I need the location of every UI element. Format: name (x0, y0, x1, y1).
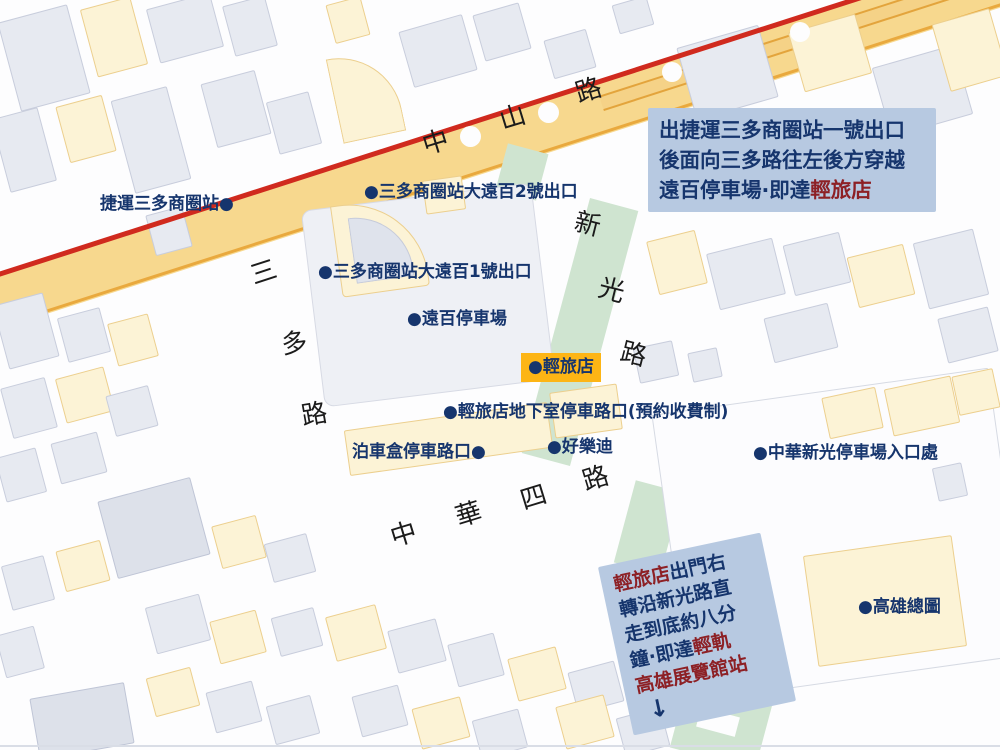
building (687, 347, 723, 383)
building (222, 0, 278, 57)
marker-hotel-basement-parking: ●輕旅店地下室停車路口(預約收費制) (443, 397, 728, 422)
hotel-name-highlight: 輕旅店 (810, 178, 872, 202)
building (783, 232, 852, 296)
building (706, 238, 786, 311)
building (472, 2, 531, 61)
building (937, 306, 999, 363)
building (447, 633, 505, 688)
building (145, 594, 212, 655)
road-notch (790, 22, 810, 42)
building (847, 244, 916, 308)
building (913, 229, 990, 310)
building (200, 70, 271, 148)
note-line: 遠百停車場·即達輕旅店 (659, 175, 925, 205)
street-name-char: 三 (245, 249, 281, 292)
marker-parking-box: 泊車盒停車路口● (352, 437, 486, 462)
road-notch (460, 126, 481, 147)
building (111, 86, 192, 194)
building (55, 540, 110, 592)
building (646, 230, 708, 295)
marker-zhonghua-xinguang-parking: ●中華新光停車場入口處 (753, 438, 938, 463)
building (325, 604, 387, 662)
street-name-char: 中 (385, 511, 421, 554)
marker-mrt-sanduo-station: 捷運三多商圈站● (100, 189, 234, 214)
road-notch (538, 102, 559, 123)
building (763, 303, 838, 364)
building (211, 515, 267, 569)
note-line: 後面向三多路往左後方穿越 (659, 145, 925, 175)
building (105, 385, 158, 437)
building (146, 0, 224, 64)
building (107, 313, 159, 366)
building (264, 533, 317, 583)
street-name-char: 多 (279, 321, 310, 361)
building (472, 708, 529, 750)
building (325, 0, 370, 44)
street-name-char: 華 (450, 491, 486, 534)
road-notch (662, 62, 682, 82)
building (398, 14, 477, 88)
building (555, 694, 615, 749)
building (97, 477, 210, 579)
building (411, 696, 470, 750)
building (0, 4, 91, 112)
building (80, 0, 148, 78)
direction-note-top: 出捷運三多商圈站一號出口 後面向三多路往左後方穿越 遠百停車場·即達輕旅店 (648, 108, 936, 212)
map-canvas: 中 山 路 三 多 路 新 光 路 中 華 四 路 捷運三多商圈站● ●三多商圈… (0, 0, 1000, 750)
marker-sanduo-exit-1: ●三多商圈站大遠百1號出口 (318, 257, 532, 282)
marker-sanduo-exit-2: ●三多商圈站大遠百2號出口 (364, 177, 578, 202)
building (387, 618, 447, 673)
street-name-char: 四 (515, 474, 551, 517)
building (55, 95, 116, 163)
building (146, 667, 201, 718)
map-edge-line (0, 745, 1000, 747)
building (57, 307, 111, 363)
building (351, 685, 408, 738)
building (0, 626, 45, 679)
building (0, 447, 47, 502)
building (507, 646, 567, 701)
building (266, 91, 322, 155)
building (209, 610, 267, 665)
building (266, 695, 321, 746)
marker-holiday-ktv: ●好樂迪 (547, 432, 613, 457)
hotel-highlight-badge: ●輕旅店 (521, 353, 601, 382)
building (612, 0, 655, 34)
building (271, 607, 324, 657)
marker-fe-parking: ●遠百停車場 (407, 304, 507, 329)
building (326, 46, 406, 143)
street-name-char: 路 (577, 455, 613, 498)
building (0, 107, 57, 193)
building (50, 432, 107, 485)
building (29, 682, 134, 750)
building (0, 377, 58, 439)
building (951, 368, 1000, 416)
building (1, 555, 55, 611)
marker-kaohsiung-library: ●高雄總圖 (858, 592, 941, 617)
note-line: 出捷運三多商圈站一號出口 (659, 115, 925, 145)
building (205, 681, 262, 734)
direction-note-bottom: 輕旅店出門右 轉沿新光路直 走到底約八分 鐘·即達輕軌 高雄展覽館站 ↓ (598, 533, 796, 736)
